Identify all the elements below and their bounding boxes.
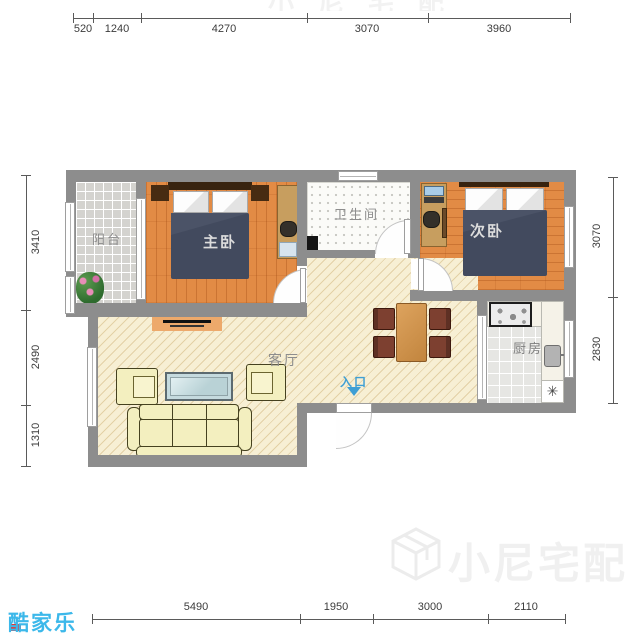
wall-living-bottom (88, 455, 307, 467)
dim-tick (570, 13, 571, 23)
living-room-label: 客厅 (268, 350, 300, 370)
dim-top-3960: 3960 (487, 23, 511, 35)
balcony-label: 阳台 (92, 229, 122, 248)
second-bed-pillow-left (465, 188, 503, 212)
dining-chair-bottom-right (429, 336, 451, 358)
master-bed-pillow-left (173, 191, 209, 213)
armchair-seat (251, 372, 273, 394)
laptop-keyboard (424, 197, 444, 203)
watermark-group: 小尼宅配 (390, 524, 640, 584)
entrance-door-leaf (336, 403, 372, 413)
dining-chair-bottom-left (373, 336, 395, 358)
dim-tick (93, 13, 94, 23)
dim-line-top (73, 18, 570, 19)
coffee-table-glass (170, 377, 228, 396)
armchair-left (116, 368, 158, 405)
dining-table (396, 303, 427, 362)
dim-left-3410: 3410 (30, 212, 42, 272)
balcony-partition-window (136, 198, 146, 300)
watermark-top-text: 小尼宅配 (268, 0, 468, 11)
balcony-window-lower (65, 276, 75, 314)
desk-books (442, 208, 447, 238)
kitchen-window (564, 320, 574, 378)
dim-tick (141, 13, 142, 23)
floorplan-canvas: 小尼宅配 (0, 0, 640, 640)
water-heater-symbol: ✳ (547, 383, 559, 400)
second-desk-chair (423, 211, 440, 228)
dim-tick (565, 614, 566, 624)
dim-top-520: 520 (74, 23, 92, 35)
second-bedroom-label: 次卧 (470, 220, 504, 241)
dim-tick (608, 403, 618, 404)
wall-master-bottom (140, 303, 307, 317)
nightstand-right (251, 185, 269, 201)
coffee-table (165, 372, 233, 401)
watermark-cube-icon (390, 526, 442, 582)
wall-bedroom2-bottom (410, 290, 576, 301)
sofa-arm-right (238, 407, 252, 451)
dim-line-bottom (92, 619, 565, 620)
kitchen-sliding-door (477, 315, 487, 400)
master-bed-headboard (168, 182, 252, 190)
dim-tick (307, 13, 308, 23)
dim-tick (488, 614, 489, 624)
bathroom-window (338, 171, 378, 181)
kitchen-label: 厨房 (513, 338, 543, 357)
wall-balcony-bottom (66, 303, 148, 317)
dim-tick (73, 13, 74, 23)
dim-tick (21, 175, 31, 176)
dim-top-4270: 4270 (212, 23, 236, 35)
dim-left-1310: 1310 (30, 405, 42, 465)
sofa-back-cushions (139, 404, 239, 420)
tv-stand (152, 316, 222, 331)
brand-logo: 酷家乐 (8, 607, 77, 637)
dim-tick (608, 297, 618, 298)
wall-top (68, 170, 576, 182)
dim-tick (428, 13, 429, 23)
dining-chair-top-left (373, 308, 395, 330)
master-desk-chair (280, 221, 297, 237)
stove (489, 302, 532, 327)
dim-tick (92, 614, 93, 624)
dim-bottom-2110: 2110 (514, 601, 538, 613)
dim-tick (373, 614, 374, 624)
tv-screen (163, 320, 211, 323)
dim-line-right (613, 177, 614, 403)
second-bed-pillow-right (506, 188, 544, 212)
dim-tick (300, 614, 301, 624)
dim-right-2830: 2830 (591, 319, 603, 379)
living-room-window (87, 347, 97, 427)
armchair-seat (133, 376, 155, 398)
dim-top-1240: 1240 (105, 23, 129, 35)
entrance-door-swing (336, 413, 372, 449)
watermark-top-cropped: 小尼宅配 (268, 0, 580, 11)
kitchen-sink (544, 345, 561, 367)
balcony-plant (76, 272, 104, 304)
watermark-text: 小尼宅配 (448, 530, 628, 591)
sofa-seat-cushions (139, 419, 239, 447)
tv-base (170, 325, 204, 327)
entrance-arrow-icon (347, 387, 361, 396)
dim-line-left (26, 175, 27, 466)
dim-bottom-3000: 3000 (418, 601, 442, 613)
dining-chair-top-right (429, 308, 451, 330)
bedroom2-door-leaf (418, 258, 424, 291)
dim-left-2490: 2490 (30, 327, 42, 387)
dim-tick (21, 466, 31, 467)
master-door-leaf (300, 268, 306, 303)
master-bed-pillow-right (212, 191, 248, 213)
dim-tick (608, 177, 618, 178)
nightstand-left (151, 185, 169, 201)
master-printer (279, 242, 297, 257)
dim-tick (21, 310, 31, 311)
water-heater-cell: ✳ (541, 380, 564, 403)
dim-bottom-1950: 1950 (324, 601, 348, 613)
bathroom-label: 卫生间 (334, 204, 379, 223)
bedroom2-window (564, 206, 574, 268)
balcony-window-upper (65, 202, 75, 272)
dim-bottom-5490: 5490 (184, 601, 208, 613)
dim-top-3070: 3070 (355, 23, 379, 35)
bathroom-door-leaf (404, 219, 411, 254)
wall-bathroom-right (410, 170, 420, 258)
laptop-screen (424, 186, 444, 196)
dim-right-3070: 3070 (591, 206, 603, 266)
master-bedroom-label: 主卧 (203, 231, 237, 252)
